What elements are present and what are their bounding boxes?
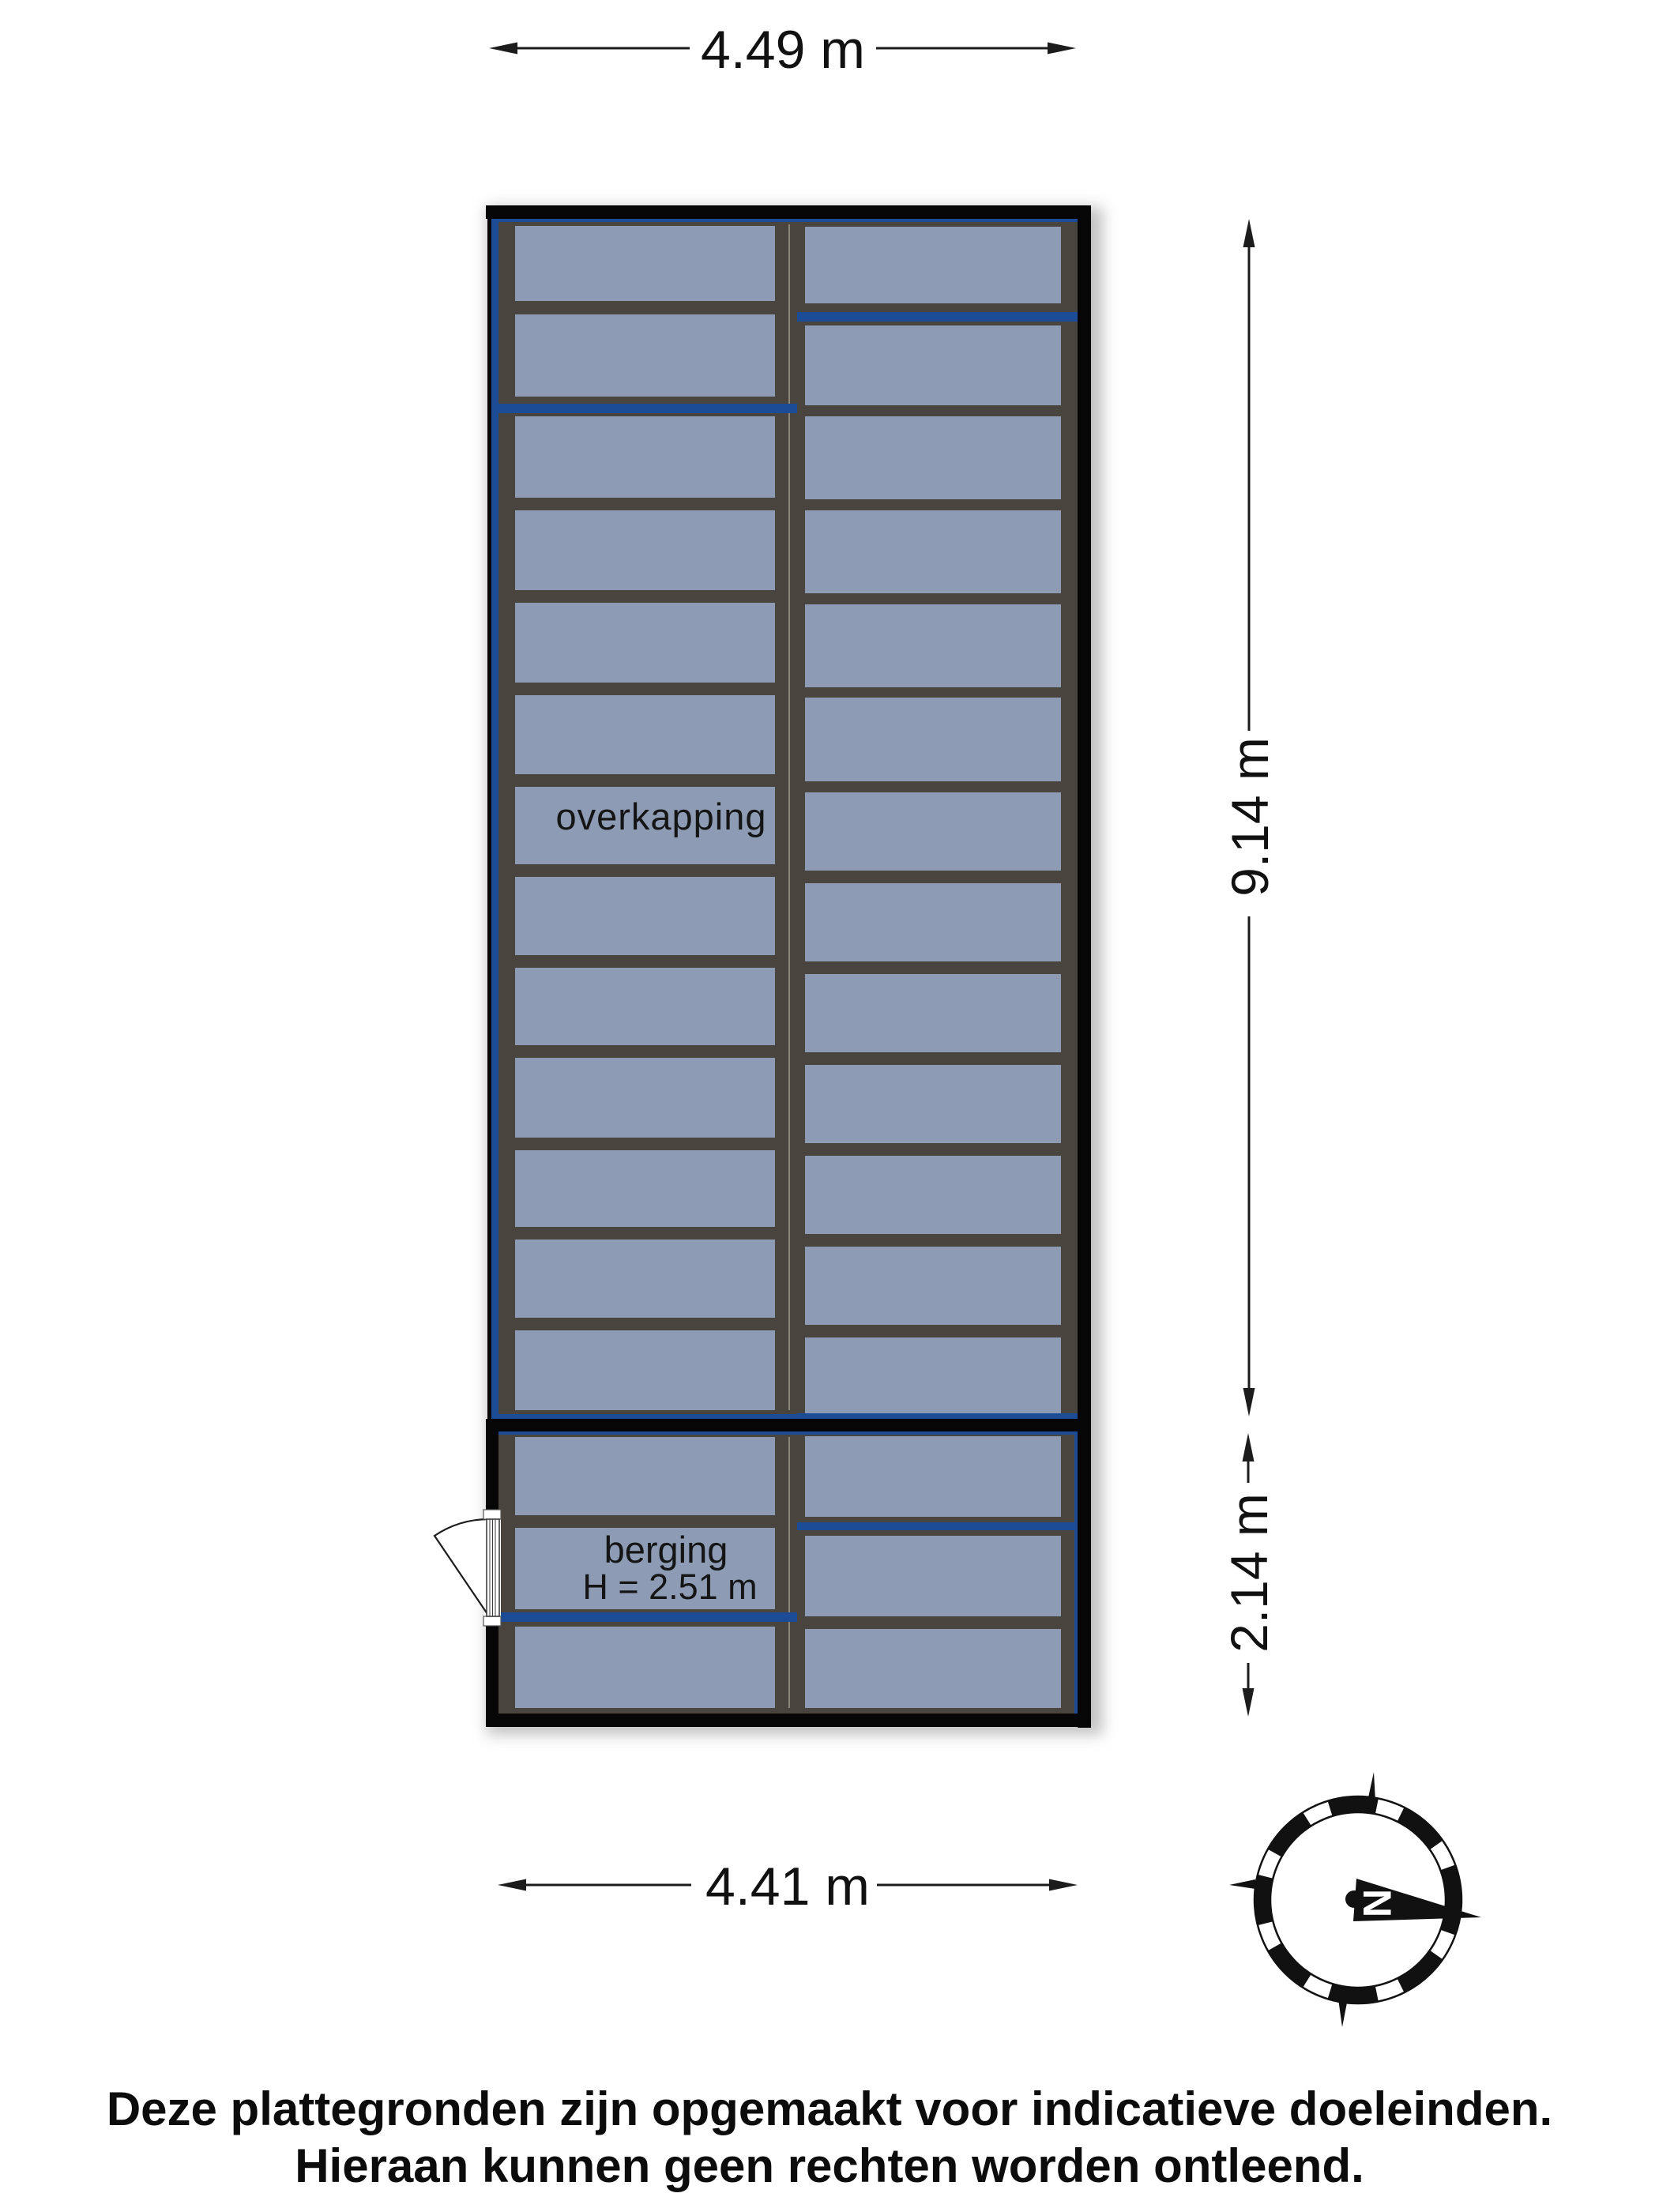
svg-text:4.41 m: 4.41 m [705,1856,870,1917]
svg-text:N: N [1355,1889,1399,1917]
svg-text:H = 2.51 m: H = 2.51 m [582,1567,757,1607]
svg-text:berging: berging [604,1529,728,1571]
svg-text:overkapping: overkapping [555,796,766,837]
svg-text:Deze plattegronden zijn opgema: Deze plattegronden zijn opgemaakt voor i… [107,2082,1552,2135]
svg-text:2.14 m: 2.14 m [1220,1493,1278,1653]
svg-text:9.14 m: 9.14 m [1221,737,1279,897]
svg-text:Hieraan kunnen geen rechten wo: Hieraan kunnen geen rechten worden ontle… [295,2139,1364,2192]
svg-text:4.49 m: 4.49 m [701,20,865,80]
